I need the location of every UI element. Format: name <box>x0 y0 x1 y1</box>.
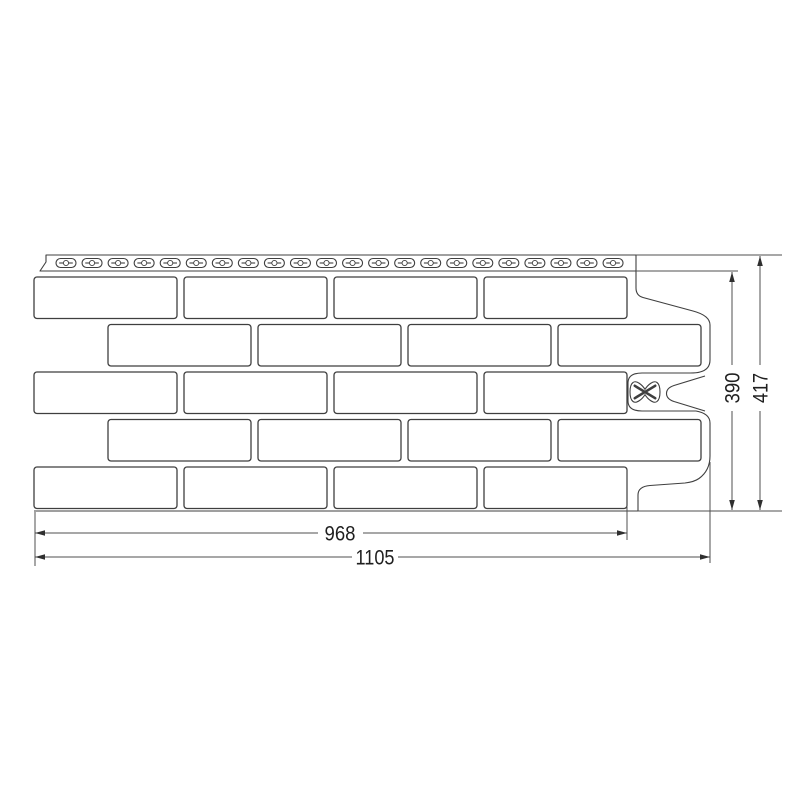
brick <box>408 325 551 367</box>
nail-slot <box>317 259 337 268</box>
nail-slot <box>473 259 493 268</box>
nail-slot <box>447 259 467 268</box>
nail-slot <box>369 259 389 268</box>
nail-slot <box>82 259 102 268</box>
panel-diagram: 968 1105 390 417 <box>0 0 800 800</box>
nail-slot <box>421 259 441 268</box>
brick <box>334 467 477 509</box>
nail-slot <box>577 259 597 268</box>
nail-slot <box>108 259 128 268</box>
brick <box>184 372 327 414</box>
x-mark-cross <box>635 386 655 398</box>
nail-slot <box>160 259 180 268</box>
dim-arrow <box>35 530 45 536</box>
brick <box>258 420 401 462</box>
dimension-total-height: 417 <box>750 256 773 510</box>
dim-arrow <box>757 256 763 266</box>
brick <box>484 467 627 509</box>
dimension-useful-height: 390 <box>722 272 745 510</box>
brick <box>258 325 401 367</box>
nail-slot <box>525 259 545 268</box>
brick <box>408 420 551 462</box>
nail-slot <box>264 259 284 268</box>
brick <box>558 325 701 367</box>
right-edge-profile <box>628 255 710 511</box>
brick <box>34 467 177 509</box>
dim-arrow <box>35 554 45 560</box>
nail-slot <box>56 259 76 268</box>
dimension-useful-width: 968 <box>35 523 627 546</box>
nail-strip <box>40 255 636 271</box>
dim-arrow <box>700 554 710 560</box>
brick <box>484 277 627 319</box>
brick <box>334 372 477 414</box>
nail-slot <box>499 259 519 268</box>
nail-slot <box>395 259 415 268</box>
nail-slot <box>134 259 154 268</box>
brick <box>108 420 251 462</box>
x-mark <box>630 382 660 402</box>
dim-label-968: 968 <box>325 523 356 546</box>
brick <box>558 420 701 462</box>
interlock-notch <box>667 376 706 411</box>
nail-slot <box>212 259 232 268</box>
brick <box>108 325 251 367</box>
nail-slot <box>238 259 258 268</box>
brick <box>334 277 477 319</box>
dim-arrow <box>729 500 735 510</box>
nail-slot <box>186 259 206 268</box>
dim-label-1105: 1105 <box>356 547 395 570</box>
brick <box>184 277 327 319</box>
technical-drawing-canvas: 968 1105 390 417 <box>0 0 800 800</box>
brick <box>34 372 177 414</box>
brick-pattern <box>34 277 701 509</box>
dim-label-417: 417 <box>750 373 773 403</box>
nail-slot <box>343 259 363 268</box>
brick <box>484 372 627 414</box>
dim-arrow <box>757 500 763 510</box>
nail-slot <box>551 259 571 268</box>
brick <box>184 467 327 509</box>
dim-arrow <box>617 530 627 536</box>
dim-label-390: 390 <box>722 373 745 404</box>
nail-slot <box>290 259 310 268</box>
dim-arrow <box>729 272 735 282</box>
dimension-total-width: 1105 <box>35 547 710 570</box>
nail-strip-outline <box>40 255 636 271</box>
brick <box>34 277 177 319</box>
nail-slot <box>603 259 623 268</box>
